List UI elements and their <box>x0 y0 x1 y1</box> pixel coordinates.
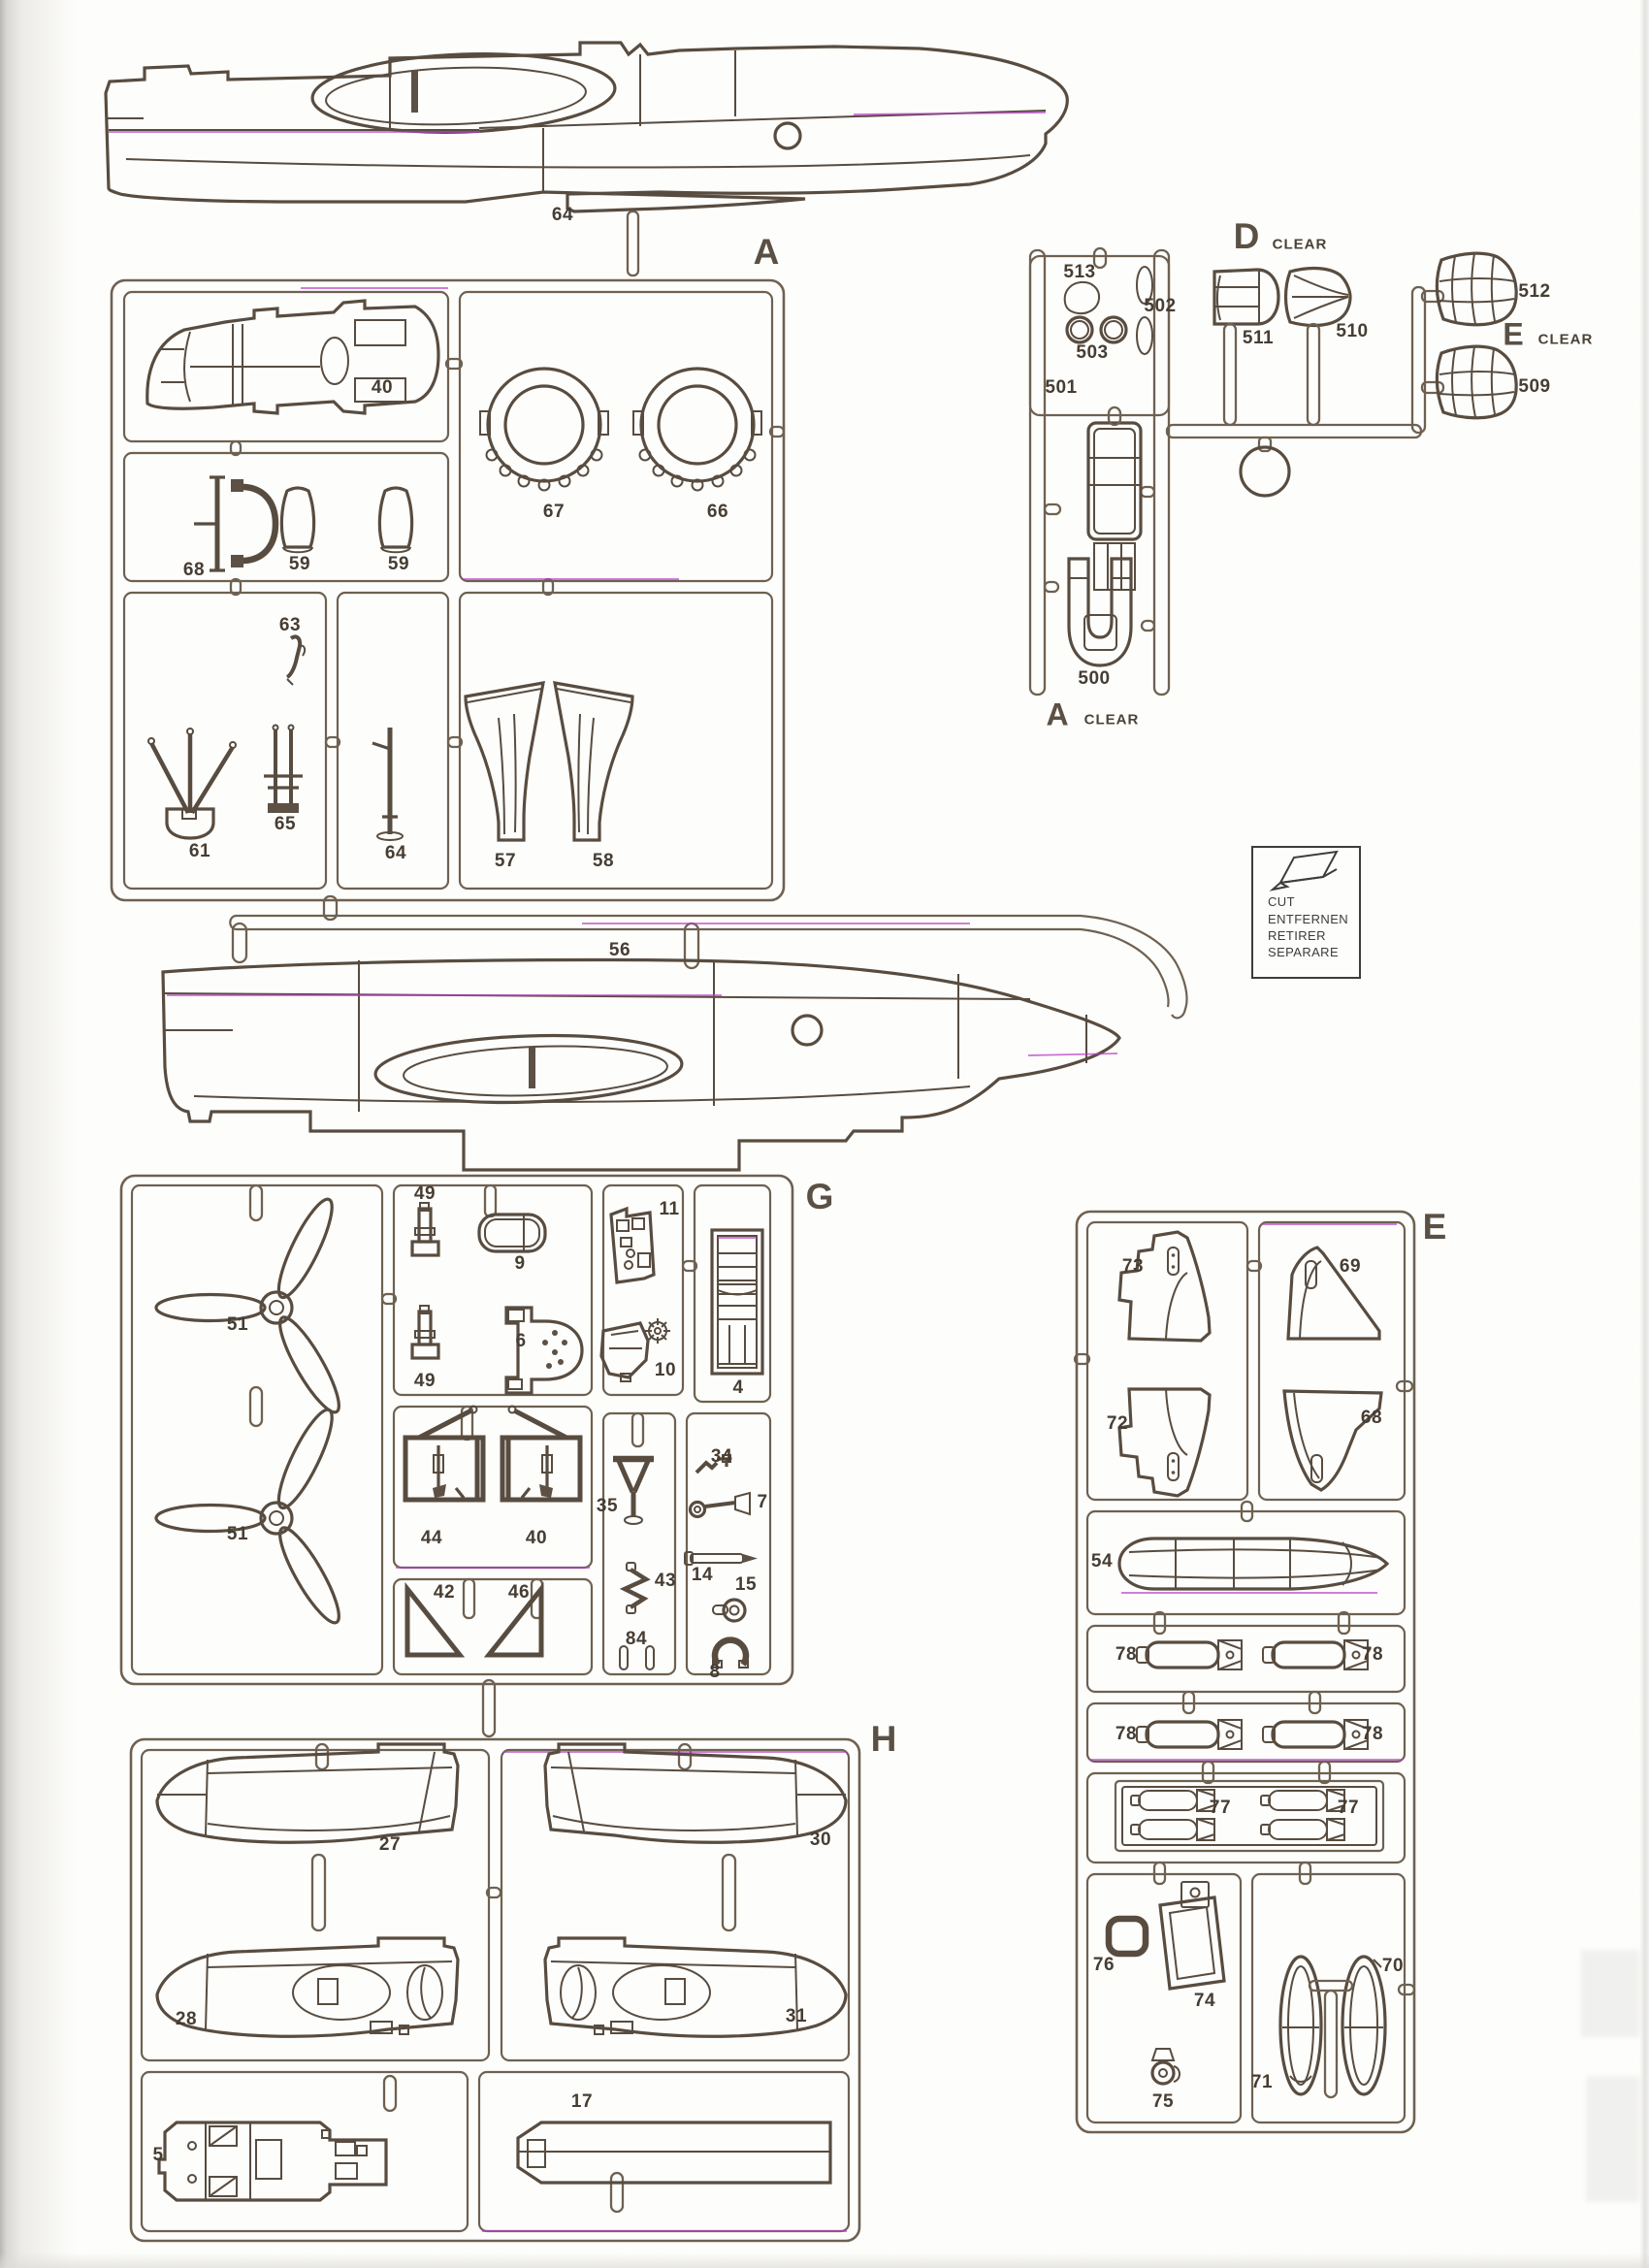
part-label-77-1: 77 <box>1210 1798 1231 1819</box>
part-label-74: 74 <box>1194 1991 1215 2012</box>
part-74-hatch-drawing <box>1160 1882 1224 1989</box>
part-9-drawing <box>479 1215 545 1251</box>
part-7-drawing <box>691 1493 751 1517</box>
part-30-nacelle-drawing <box>545 1744 846 1842</box>
part-66-cowl-drawing <box>633 369 761 491</box>
part-509-dome-drawing <box>1437 346 1516 418</box>
part-label-49-2: 49 <box>414 1371 436 1392</box>
part-label-40-g: 40 <box>526 1528 547 1549</box>
part-72-fin-drawing <box>1119 1389 1210 1496</box>
instruction-sheet-page: 64 56 A 40 67 66 68 59 59 63 61 65 64 57… <box>0 0 1649 2268</box>
part-label-40-a: 40 <box>372 377 393 399</box>
part-label-500: 500 <box>1078 668 1110 690</box>
part-label-65: 65 <box>275 814 296 835</box>
part-label-28: 28 <box>176 2009 197 2030</box>
part-label-6: 6 <box>515 1331 526 1352</box>
part-label-68-e: 68 <box>1361 1408 1382 1429</box>
part-label-14: 14 <box>692 1565 713 1586</box>
part-label-75: 75 <box>1152 2091 1174 2113</box>
part-label-5: 5 <box>152 2145 163 2166</box>
part-503-drawing <box>1067 317 1126 342</box>
part-label-51-2: 51 <box>227 1524 248 1545</box>
part-40-drawing <box>147 301 438 413</box>
part-511-drawing <box>1214 270 1278 324</box>
part-69-fin-drawing <box>1288 1247 1379 1339</box>
part-label-61: 61 <box>189 841 210 862</box>
part-label-511: 511 <box>1243 328 1274 349</box>
part-63-drawing <box>287 636 305 685</box>
clear-sprue-d-letter: D <box>1234 216 1260 257</box>
part-label-34: 34 <box>711 1446 732 1468</box>
part-5-cockpit-floor-drawing <box>159 2122 386 2200</box>
part-label-49-1: 49 <box>414 1183 436 1205</box>
part-label-73: 73 <box>1122 1256 1144 1278</box>
part-label-7: 7 <box>757 1492 767 1513</box>
part-11-drawing <box>611 1209 654 1282</box>
part-label-11: 11 <box>659 1199 679 1220</box>
cut-text-en: CUT <box>1268 894 1295 909</box>
part-513-drawing <box>1065 282 1099 313</box>
part-label-9: 9 <box>514 1253 525 1275</box>
part-label-51-1: 51 <box>227 1314 248 1336</box>
clear-sprue-e-letter: E <box>1503 317 1523 353</box>
cut-text-de: ENTFERNEN <box>1268 912 1348 926</box>
part-label-54: 54 <box>1091 1551 1113 1572</box>
part-51-propeller-2-drawing <box>156 1405 348 1630</box>
sprue-e-center-runner <box>1309 1981 1352 2097</box>
part-57-funnel-drawing <box>466 683 543 840</box>
part-label-15: 15 <box>735 1574 757 1596</box>
sprue-a-frame <box>112 280 784 900</box>
sprue-diagram-artwork <box>0 0 1649 2268</box>
clear-runner-drawing <box>1167 287 1443 496</box>
part-label-8: 8 <box>709 1662 720 1683</box>
part-label-66: 66 <box>707 502 728 523</box>
fuselage-half-64-drawing <box>106 43 1067 275</box>
sprue-a-letter: A <box>754 232 780 273</box>
part-label-69: 69 <box>1340 1256 1361 1278</box>
part-label-35: 35 <box>597 1496 618 1517</box>
part-label-30: 30 <box>810 1830 831 1851</box>
part-68-fin-drawing <box>1284 1391 1381 1490</box>
part-label-78-1: 78 <box>1115 1644 1137 1666</box>
part-70-oval-drawing <box>1342 1957 1385 2094</box>
part-label-42: 42 <box>434 1582 455 1604</box>
part-label-78-3: 78 <box>1115 1724 1137 1745</box>
part-40-gear-drawing <box>502 1407 580 1501</box>
part-59-drawing <box>281 488 411 552</box>
sprue-g-letter: G <box>806 1177 834 1217</box>
fuselage-half-56-drawing <box>163 960 1119 1171</box>
part-49-1-drawing <box>412 1203 438 1255</box>
part-label-67: 67 <box>543 502 565 523</box>
part-label-71: 71 <box>1251 2072 1273 2093</box>
part-58-funnel-drawing <box>555 683 632 840</box>
part-label-509: 509 <box>1518 376 1550 398</box>
part-510-drawing <box>1286 269 1351 326</box>
part-49-2-drawing <box>412 1306 438 1358</box>
part-73-fin-drawing <box>1119 1232 1210 1341</box>
part-51-propeller-1-drawing <box>156 1194 348 1419</box>
sprue-h-frame <box>131 1739 859 2241</box>
part-label-78-4: 78 <box>1362 1724 1383 1745</box>
part-label-59-2: 59 <box>388 554 409 575</box>
part-label-68-a: 68 <box>183 560 205 581</box>
part-75-drawing <box>1152 2049 1180 2084</box>
part-71-oval-drawing <box>1280 1957 1321 2094</box>
part-64-lever-drawing <box>372 728 403 840</box>
sprue-e-letter: E <box>1423 1207 1447 1247</box>
clear-sprue-d-word: CLEAR <box>1273 237 1328 253</box>
part-label-501: 501 <box>1045 377 1077 399</box>
part-label-10: 10 <box>655 1360 676 1381</box>
part-label-76: 76 <box>1093 1955 1115 1976</box>
part-78-bombs-drawing <box>1137 1640 1368 1749</box>
part-label-84: 84 <box>626 1629 647 1650</box>
clear-sprue-a-word: CLEAR <box>1084 712 1140 729</box>
sprue-h-letter: H <box>871 1719 897 1760</box>
part-label-63: 63 <box>279 615 301 636</box>
cut-text-fr: RETIRER <box>1268 928 1326 943</box>
cut-text-it: SEPARARE <box>1268 945 1339 959</box>
part-65-drawing <box>264 726 303 814</box>
part-label-17: 17 <box>571 2091 593 2113</box>
sprue-e-frame <box>1075 1212 1414 2132</box>
part-15-drawing <box>713 1600 745 1621</box>
part-label-77-2: 77 <box>1338 1798 1359 1819</box>
part-label-27: 27 <box>379 1834 401 1856</box>
part-label-72: 72 <box>1107 1413 1128 1435</box>
part-4-bulkhead-drawing <box>712 1230 762 1374</box>
part-35-drawing <box>613 1459 654 1524</box>
clear-sprue-a-letter: A <box>1046 697 1068 733</box>
part-28-nacelle-drawing <box>157 1938 458 2036</box>
part-14-drawing <box>685 1552 758 1565</box>
clear-sprue-e-word: CLEAR <box>1538 332 1594 348</box>
part-68-drawing <box>194 477 275 570</box>
part-label-64-a: 64 <box>385 843 406 864</box>
part-label-46: 46 <box>508 1582 530 1604</box>
part-76-drawing <box>1109 1919 1146 1954</box>
part-label-31: 31 <box>786 2006 807 2027</box>
part-label-56: 56 <box>609 940 630 961</box>
part-label-502: 502 <box>1144 296 1176 317</box>
part-label-64-top: 64 <box>552 205 573 226</box>
part-label-43: 43 <box>655 1571 676 1592</box>
part-label-503: 503 <box>1076 342 1108 364</box>
part-label-513: 513 <box>1063 262 1095 283</box>
part-512-dome-drawing <box>1437 253 1516 325</box>
part-label-78-2: 78 <box>1362 1644 1383 1666</box>
part-label-70: 70 <box>1382 1956 1404 1977</box>
part-61-drawing <box>148 729 236 838</box>
part-43-drawing <box>625 1563 646 1613</box>
part-27-nacelle-drawing <box>157 1744 458 1842</box>
part-label-58: 58 <box>593 851 614 872</box>
part-501-drawing <box>1088 407 1141 590</box>
runner-bar-drawing <box>230 896 1186 1018</box>
part-label-59-1: 59 <box>289 554 310 575</box>
part-54-tank-drawing <box>1119 1539 1387 1589</box>
part-label-510: 510 <box>1336 321 1368 342</box>
part-67-cowl-drawing <box>480 369 608 491</box>
part-label-512: 512 <box>1518 281 1550 303</box>
part-label-57: 57 <box>495 851 516 872</box>
part-label-4: 4 <box>732 1377 743 1399</box>
part-label-44: 44 <box>421 1528 442 1549</box>
part-17-bay-door-drawing <box>518 2122 830 2183</box>
